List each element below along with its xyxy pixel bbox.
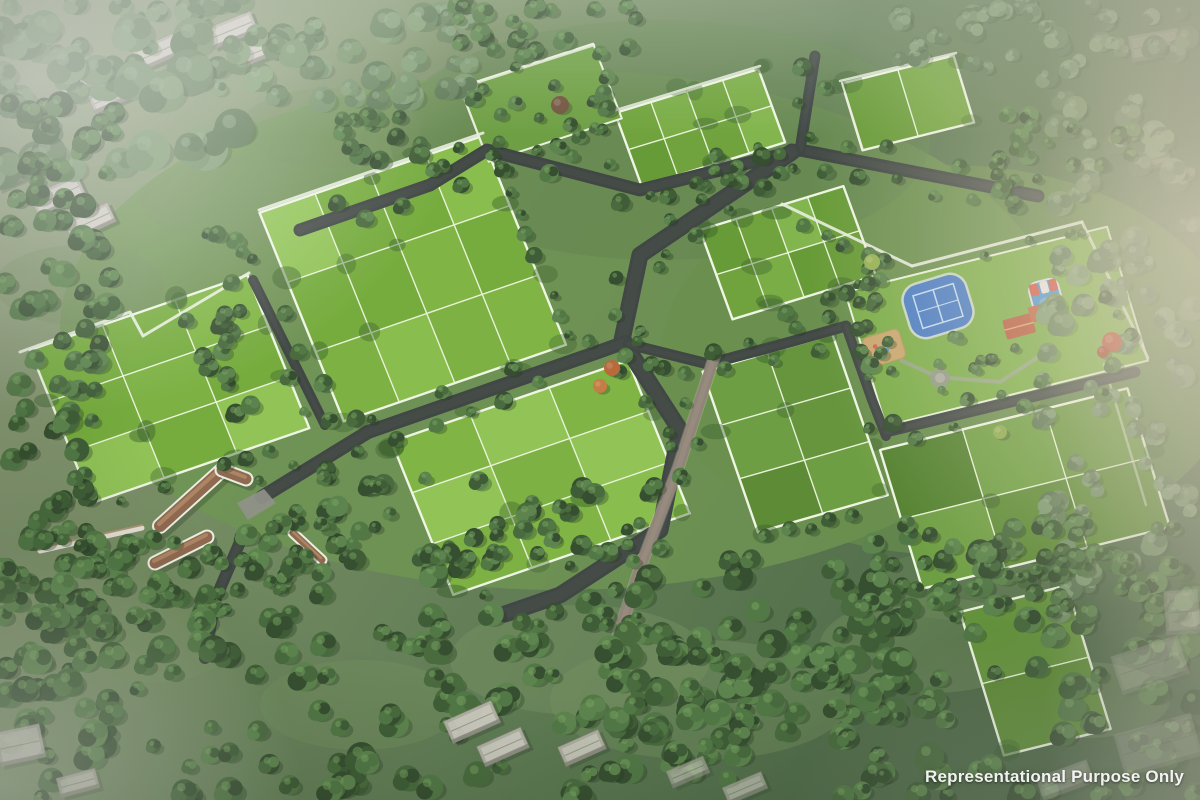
neighbor-house: [1164, 589, 1200, 639]
neighbor-house: [56, 767, 104, 800]
neighbor-house: [1111, 634, 1194, 698]
aerial-scene: [0, 0, 1200, 800]
watermark-label: Representational Purpose Only: [925, 767, 1184, 787]
aerial-development-render: Representational Purpose Only: [0, 0, 1200, 800]
